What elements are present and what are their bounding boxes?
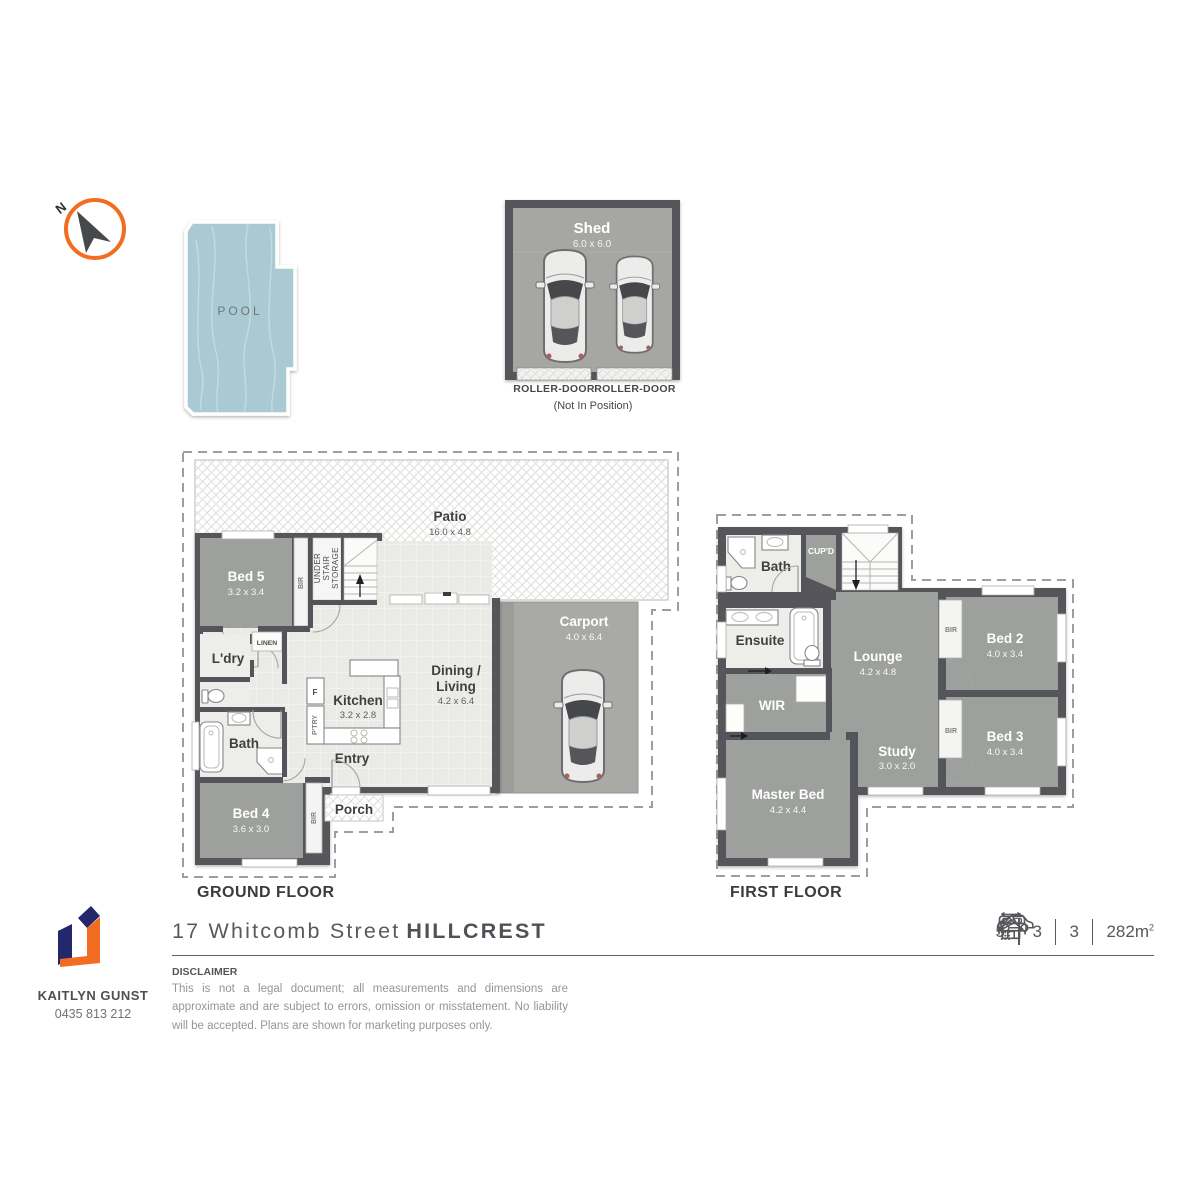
cupd-label: CUP'D: [808, 546, 834, 556]
bed5-bir-label: BIR: [298, 577, 305, 589]
shed-label: Shed: [574, 220, 611, 237]
linen-cupboard: LINEN: [252, 632, 282, 651]
lounge-dims: 4.2 x 4.8: [860, 667, 896, 678]
first-stairs: [842, 533, 898, 590]
ground-floor-plan: Patio 16.0 x 4.8 Carport 4.0 x 6.4 BIR B…: [183, 452, 678, 901]
feature-cars: 3: [1069, 922, 1078, 942]
linen-label: LINEN: [257, 640, 277, 647]
study-dims: 3.0 x 2.0: [879, 761, 915, 772]
understair-line1: UNDER: [313, 553, 322, 583]
dining-dims: 4.2 x 6.4: [438, 696, 474, 707]
room-study: Study 3.0 x 2.0: [878, 744, 916, 772]
agent-name: KAITLYN GUNST: [16, 988, 170, 1003]
area-exponent: 2: [1149, 922, 1154, 932]
carport-dims: 4.0 x 6.4: [566, 632, 602, 643]
address-suburb: HILLCREST: [406, 919, 546, 943]
first-floor-plan: Lounge 4.2 x 4.8 Study 3.0 x 2.0 Bath CU…: [717, 515, 1073, 901]
laundry-label: L'dry: [212, 651, 245, 666]
kitchen-dims: 3.2 x 2.8: [340, 710, 376, 721]
room-bed3: Bed 3 4.0 x 3.4: [946, 697, 1058, 787]
room-bath-first: Bath: [726, 535, 806, 592]
ensuite-label: Ensuite: [736, 633, 785, 648]
property-address: 17 Whitcomb StreetHILLCREST: [172, 919, 547, 944]
address-street: 17 Whitcomb Street: [172, 919, 400, 943]
feature-divider: [1055, 919, 1057, 945]
disclaimer-heading: DISCLAIMER: [172, 966, 237, 978]
pool: POOL: [186, 222, 295, 414]
bed2-bir-label: BIR: [945, 627, 957, 634]
bed2-label: Bed 2: [987, 631, 1024, 646]
roller-door-left-label: ROLLER-DOOR: [513, 383, 595, 395]
bed4-bir-label: BIR: [311, 812, 318, 824]
shed-note: (Not In Position): [554, 400, 633, 412]
shed: Shed 6.0 x 6.0 ROLLER-DOOR ROLLER-DOOR (…: [505, 200, 680, 412]
bed5-label: Bed 5: [228, 569, 265, 584]
dining-label-2: Living: [436, 679, 476, 694]
room-wir: WIR: [726, 667, 832, 732]
agent-block: KAITLYN GUNST 0435 813 212: [16, 988, 170, 1021]
bed4-dims: 3.6 x 3.0: [233, 824, 269, 835]
room-bed2: Bed 2 4.0 x 3.4: [946, 597, 1058, 690]
agent-phone: 0435 813 212: [16, 1007, 170, 1021]
pantry-label: P'TRY: [312, 715, 319, 735]
patio-dims: 16.0 x 4.8: [429, 527, 471, 538]
dining-label-1: Dining /: [431, 663, 481, 678]
kitchen-label: Kitchen: [333, 693, 383, 708]
entry-label: Entry: [335, 751, 370, 766]
floorplan-page: N POOL Shed 6.0 x 6.0 ROLLER-DOOR ROLLER…: [0, 0, 1200, 1200]
room-ensuite: Ensuite: [726, 600, 831, 668]
bath-ground-label: Bath: [229, 736, 259, 751]
room-bed5: BIR Bed 5 3.2 x 3.4: [200, 538, 308, 628]
entry-door-opening: [332, 787, 360, 795]
bed3-dims: 4.0 x 3.4: [987, 747, 1023, 758]
disclaimer-text: This is not a legal document; all measur…: [172, 980, 568, 1035]
bath-first-label: Bath: [761, 559, 791, 574]
carport-label: Carport: [560, 614, 609, 629]
shed-car-right-icon: [610, 256, 660, 352]
wir-label: WIR: [759, 698, 785, 713]
ground-floor-title: GROUND FLOOR: [197, 884, 335, 901]
agency-logo: [52, 903, 110, 977]
compass-icon: N: [53, 199, 124, 258]
patio-label: Patio: [433, 509, 466, 524]
feature-area: 282m2: [1106, 922, 1154, 942]
area-value: 282m: [1106, 922, 1149, 941]
carport-car-icon: [554, 670, 612, 782]
shed-dims: 6.0 x 6.0: [573, 239, 612, 250]
understair-line2: STAIR: [322, 556, 331, 581]
feature-showers: 3: [1033, 922, 1042, 942]
room-wc: [195, 677, 250, 707]
bed3-label: Bed 3: [987, 729, 1024, 744]
pool-label: POOL: [217, 304, 262, 318]
showers-count: 3: [1033, 922, 1042, 942]
bed5-dims: 3.2 x 3.4: [228, 587, 264, 598]
house-area-icon: [996, 912, 1026, 940]
feature-divider: [1092, 919, 1094, 945]
cars-count: 3: [1069, 922, 1078, 942]
bed3-bir-label: BIR: [945, 728, 957, 735]
master-label: Master Bed: [752, 787, 825, 802]
fridge-label: F: [313, 688, 318, 697]
master-dims: 4.2 x 4.4: [770, 805, 806, 816]
bed4-label: Bed 4: [233, 806, 270, 821]
footer-divider: [172, 955, 1154, 956]
porch: Porch: [325, 795, 383, 821]
bed2-dims: 4.0 x 3.4: [987, 649, 1023, 660]
porch-label: Porch: [335, 802, 373, 817]
room-carport: Carport 4.0 x 6.4: [496, 602, 638, 793]
room-master: Master Bed 4.2 x 4.4: [718, 732, 858, 858]
compass-north-label: N: [53, 199, 70, 217]
understair-line3: STORAGE: [331, 547, 340, 589]
study-label: Study: [878, 744, 916, 759]
roller-door-right-label: ROLLER-DOOR: [594, 383, 676, 395]
first-floor-title: FIRST FLOOR: [730, 884, 842, 901]
shed-car-left-icon: [536, 250, 594, 362]
lounge-label: Lounge: [854, 649, 903, 664]
feature-summary: 5 3 3 282m2: [996, 912, 1154, 952]
